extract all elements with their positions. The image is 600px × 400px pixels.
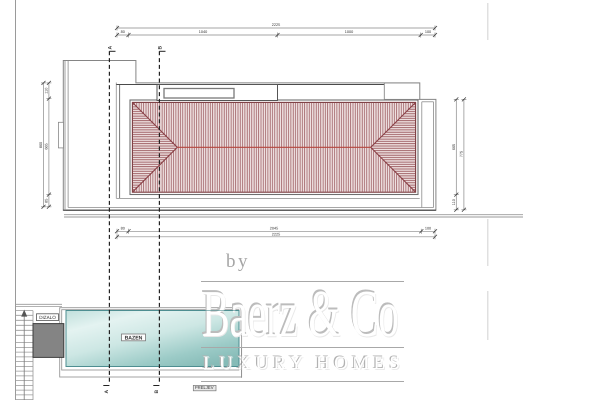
svg-text:2225: 2225 [272, 232, 280, 236]
svg-text:775: 775 [460, 151, 464, 157]
svg-text:1040: 1040 [199, 30, 207, 34]
svg-text:2045: 2045 [270, 227, 278, 231]
svg-text:110: 110 [45, 88, 49, 94]
svg-text:860: 860 [39, 142, 43, 148]
svg-text:85: 85 [45, 199, 49, 203]
svg-text:2225: 2225 [272, 23, 280, 27]
svg-text:B: B [154, 390, 160, 394]
svg-text:B: B [158, 46, 164, 50]
svg-text:100: 100 [425, 227, 431, 231]
svg-text:DIZALO: DIZALO [39, 315, 56, 320]
svg-text:A: A [108, 46, 114, 50]
svg-text:665: 665 [452, 144, 456, 150]
svg-text:A: A [104, 390, 110, 394]
svg-text:110: 110 [452, 199, 456, 205]
svg-text:1000: 1000 [345, 30, 353, 34]
svg-text:80: 80 [121, 30, 125, 34]
svg-text:100: 100 [425, 30, 431, 34]
svg-text:665: 665 [45, 143, 49, 149]
svg-text:PRELJEV: PRELJEV [195, 385, 214, 390]
svg-text:BAZEN: BAZEN [125, 336, 143, 342]
svg-text:80: 80 [121, 227, 125, 231]
